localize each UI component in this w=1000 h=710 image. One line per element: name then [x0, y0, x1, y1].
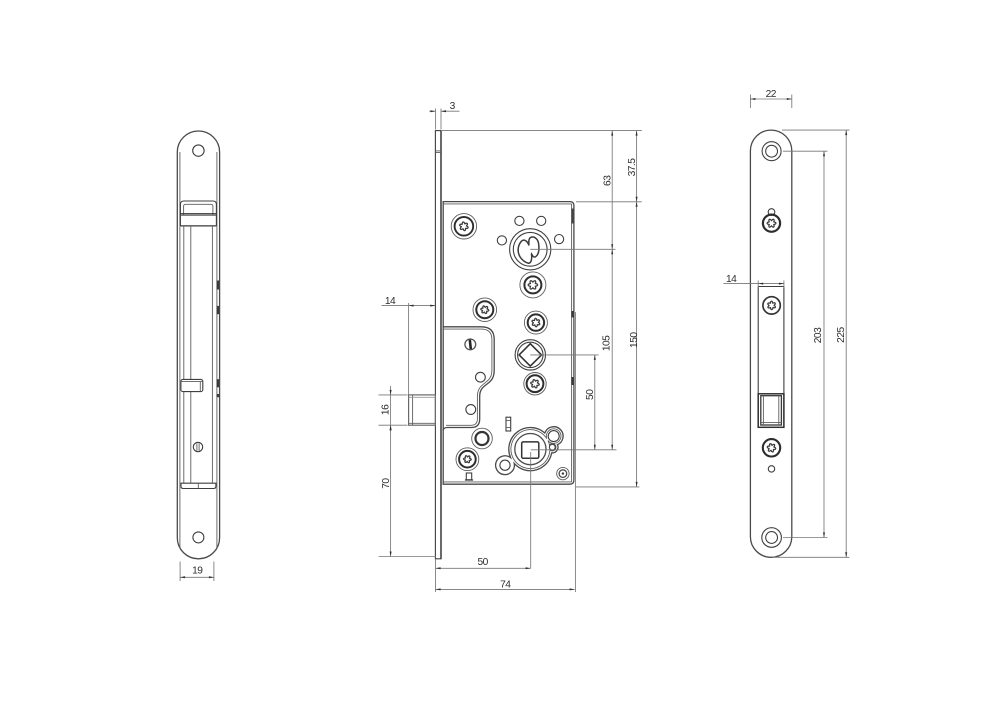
svg-text:16: 16 [381, 404, 392, 415]
svg-text:63: 63 [603, 175, 614, 186]
svg-text:19: 19 [192, 565, 203, 576]
svg-text:50: 50 [478, 557, 489, 568]
svg-text:14: 14 [385, 296, 396, 307]
svg-text:150: 150 [629, 332, 640, 348]
svg-text:105: 105 [602, 335, 613, 351]
svg-text:3: 3 [450, 101, 456, 112]
svg-text:14: 14 [726, 274, 737, 285]
svg-text:50: 50 [585, 389, 596, 400]
svg-text:203: 203 [813, 327, 824, 343]
svg-text:22: 22 [766, 89, 777, 100]
svg-text:74: 74 [500, 580, 511, 591]
svg-text:70: 70 [381, 478, 392, 489]
svg-text:37.5: 37.5 [627, 158, 638, 177]
svg-text:225: 225 [836, 327, 847, 343]
